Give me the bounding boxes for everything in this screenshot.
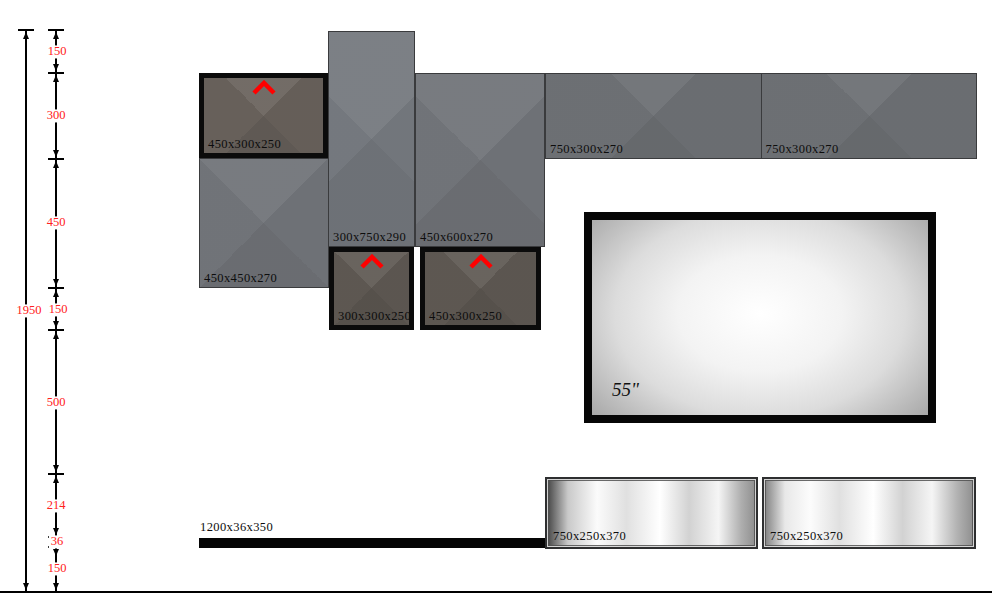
tv-screen: 55" [592,220,928,415]
dimension-arrow [53,32,59,39]
dimension-arrow [53,332,59,339]
dim-label-300: 300 [45,109,68,122]
dim-label-150b: 150 [47,303,70,316]
dimension-arrow [53,161,59,168]
bottom-shelf-1: 750x250x370 [545,477,758,549]
dimension-arrow [53,476,59,483]
dimension-arrow [53,290,59,297]
cabinet-door-wide: 450x300x250 [420,247,541,330]
dimension-tick [18,29,34,31]
dim-label-total: 1950 [15,304,44,317]
cabinet-size-label: 450x600x270 [420,231,493,245]
dimension-arrow [23,583,29,590]
door-open-chevron-icon [357,254,387,269]
top-shelf-1: 750x300x270 [545,73,762,159]
dimension-arrow [53,75,59,82]
cabinet-size-label: 450x300x250 [208,138,281,152]
cabinet-square: 450x450x270 [199,158,329,288]
dimension-tick [48,72,64,74]
plinth-bar [199,538,546,548]
floor-line [0,591,992,593]
cabinet-tall-column: 300x750x290 [328,31,415,247]
cabinet-size-label: 450x450x270 [204,272,277,286]
dimension-arrow [53,279,59,286]
dimension-arrow [53,465,59,472]
cabinet-mid: 450x600x270 [415,73,545,247]
cabinet-size-label: 450x300x250 [429,310,502,324]
door-open-chevron-icon [249,80,279,95]
dim-label-150a: 150 [46,45,69,58]
dimension-arrow [23,32,29,39]
cabinet-size-label: 300x750x290 [333,231,406,245]
bottom-shelf-2: 750x250x370 [762,477,976,549]
dimension-tick [48,29,64,31]
shelf-size-label: 750x250x370 [770,530,843,544]
shelf-size-label: 750x300x270 [766,143,839,157]
shelf-size-label: 750x250x370 [553,530,626,544]
door-open-chevron-icon [466,254,496,269]
dimension-arrow [53,150,59,157]
dimension-arrow [53,549,59,556]
tv-size-label: 55" [612,379,639,401]
top-shelf-2: 750x300x270 [761,73,978,159]
cabinet-door-small: 300x300x250 [329,247,414,330]
dimension-tick [48,287,64,289]
dim-label-150c: 150 [46,562,69,575]
cabinet-door-top: 450x300x250 [199,73,328,158]
dim-label-500: 500 [45,396,68,409]
dimension-tick [48,473,64,475]
dimension-arrow [53,583,59,590]
dim-label-450: 450 [45,216,68,229]
dimension-tick [48,329,64,331]
tv-55-inch: 55" [584,212,936,423]
plinth-size-label: 1200x36x350 [200,520,273,535]
dim-label-36: 36 [49,535,66,548]
dim-label-214: 214 [45,499,68,512]
dimension-arrow [53,64,59,71]
furniture-elevation-drawing: 1950 150 300 450 150 500 214 36 150 450x… [0,0,992,606]
dimension-arrow [53,321,59,328]
cabinet-size-label: 300x300x250 [338,310,411,324]
shelf-size-label: 750x300x270 [550,143,623,157]
dimension-tick [48,158,64,160]
